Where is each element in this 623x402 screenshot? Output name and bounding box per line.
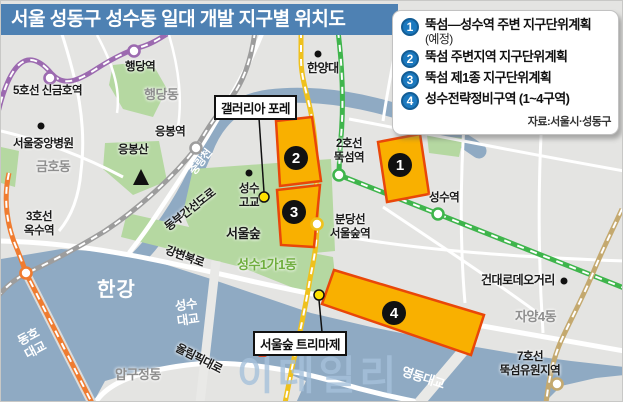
page-title: 서울 성동구 성수동 일대 개발 지구별 위치도 [1,4,398,35]
legend-badge-1: 1 [401,18,419,36]
callout-seoulsup-trimaje: 서울숲 트리마제 [253,331,347,356]
poi-dot-kondae [561,278,568,285]
station-icon-seongsu [433,209,444,220]
map-infographic: 이데일리 5호선 신금호역 행당역 행당동 한양대 서울중앙병원 금호동 응봉역… [0,0,623,402]
station-label-ttukseom: 2호선 뚝섬역 [327,138,371,165]
legend-label-1-sub: (예정) [425,33,591,47]
poi-label-seongsu-hs: 성수 고교 [231,183,267,210]
legend-badge-4: 4 [401,92,419,110]
area-label-apgujeong: 압구정동 [115,367,161,382]
legend-label-1-main: 뚝섬―성수역 주변 지구단위계획 [425,18,591,33]
legend-source: 자료:서울시·성동구 [401,113,611,129]
legend-label-4: 성수전략정비구역 (1~4구역) [425,92,569,107]
poi-dot-hanyang [315,51,322,58]
station-icon-seoulsup [312,219,323,230]
station-label-ttukseom-resort: 7호선 뚝섬유원지역 [487,351,573,378]
legend-label-3: 뚝섬 제1종 지구단위계획 [425,71,551,86]
poi-label-hospital: 서울중앙병원 [13,138,73,152]
station-label-eungbong: 응봉역 [155,126,185,140]
poi-label-eungbongsan: 응봉산 [118,144,148,158]
zone-2-badge: 2 [284,146,308,170]
station-label-seongsuyeok: 성수역 [429,192,459,206]
bridge-label-seongsudaegyo: 성수 대교 [169,296,205,330]
legend-item-3: 3 뚝섬 제1종 지구단위계획 [401,71,611,89]
legend-item-2: 2 뚝섬 주변지역 지구단위계획 [401,50,611,68]
area-label-seongsu1ga1: 성수1가1동 [237,257,296,272]
legend-box: 1 뚝섬―성수역 주변 지구단위계획 (예정) 2 뚝섬 주변지역 지구단위계획… [392,10,619,135]
station-icon-ttukseom [334,170,345,181]
poi-label-hanyang: 한양대 [307,61,339,75]
station-label-singeumho: 5호선 신금호역 [13,85,82,99]
legend-badge-3: 3 [401,71,419,89]
river-label-hangang: 한강 [97,279,136,303]
legend-label-1: 뚝섬―성수역 주변 지구단위계획 (예정) [425,18,591,47]
poi-dot-hospital [38,123,45,130]
station-label-seoulsup: 분당선 서울숲역 [323,214,377,241]
legend-item-4: 4 성수전략정비구역 (1~4구역) [401,92,611,110]
zone-1-badge: 1 [388,153,412,177]
area-label-jayang4: 자양4동 [515,309,556,324]
callout-galleria-foret: 갤러리아 포레 [214,95,297,120]
legend-item-1: 1 뚝섬―성수역 주변 지구단위계획 (예정) [401,18,611,47]
park-label-seoulsup: 서울숲 [226,226,260,241]
marker-icon-trimaje [314,290,324,300]
legend-badge-2: 2 [401,50,419,68]
poi-dot-seongsu-hs [246,170,253,177]
zone-3-badge: 3 [282,200,306,224]
park-left-edge [1,147,19,187]
station-icon-singeumho [45,73,56,84]
area-label-haengdangdong: 행당동 [144,87,178,102]
station-icon-ttukseom-resort [552,379,563,390]
legend-label-2: 뚝섬 주변지역 지구단위계획 [425,50,567,65]
area-label-geumho: 금호동 [36,159,70,174]
zone-4-badge: 4 [382,301,406,325]
station-icon-oksu [21,268,32,279]
station-label-haengdang: 행당역 [125,61,155,75]
station-label-oksu: 3호선 옥수역 [17,211,61,238]
station-icon-haengdang [129,46,140,57]
poi-label-kondae-rodeo: 건대로데오거리 [481,273,555,287]
